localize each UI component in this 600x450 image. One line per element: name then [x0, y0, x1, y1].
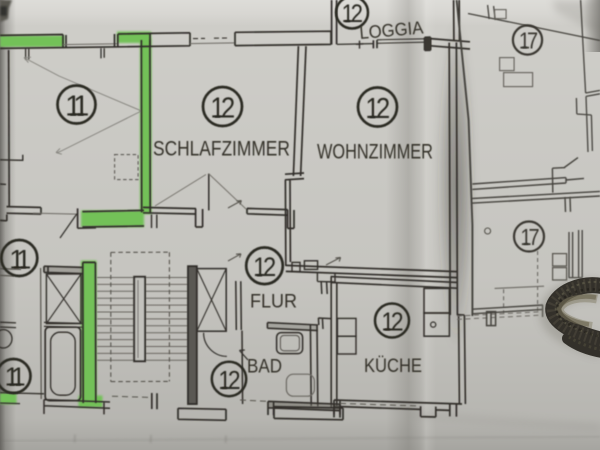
svg-text:12: 12 — [253, 253, 275, 283]
svg-text:12: 12 — [218, 367, 240, 396]
svg-text:BAD: BAD — [247, 354, 282, 376]
svg-text:12: 12 — [365, 91, 389, 124]
svg-text:12: 12 — [210, 91, 234, 124]
svg-text:17: 17 — [520, 223, 538, 250]
svg-text:WOHNZIMMER: WOHNZIMMER — [317, 140, 433, 163]
svg-text:SCHLAFZIMMER: SCHLAFZIMMER — [153, 138, 290, 161]
svg-text:12: 12 — [381, 308, 403, 337]
svg-text:FLUR: FLUR — [250, 290, 297, 312]
svg-text:KÜCHE: KÜCHE — [364, 355, 422, 377]
svg-text:17: 17 — [519, 27, 537, 54]
